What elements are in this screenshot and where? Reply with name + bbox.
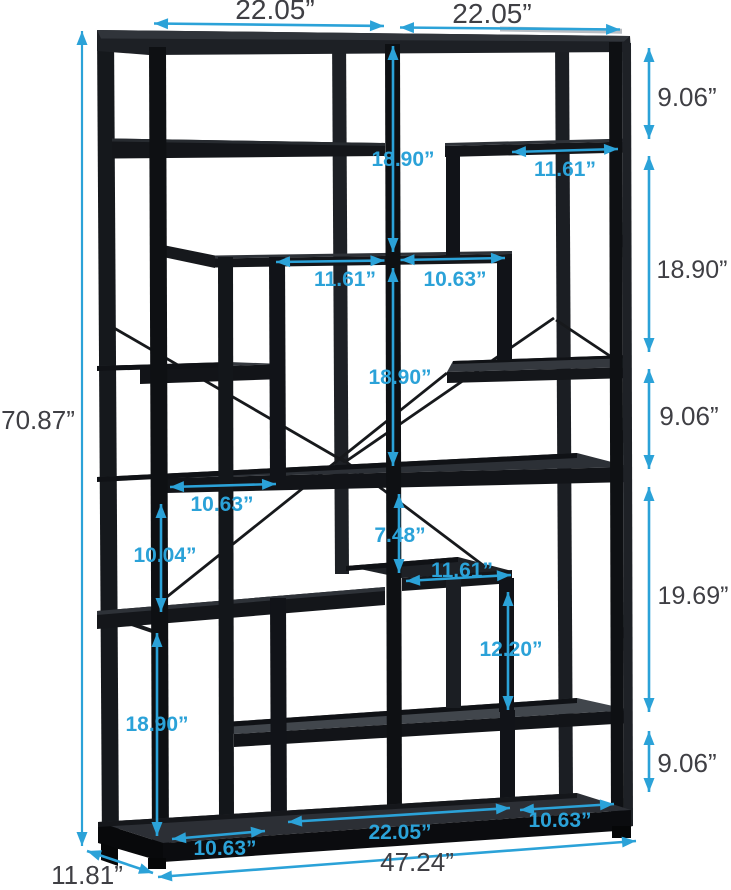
svg-text:70.87”: 70.87” bbox=[1, 405, 75, 435]
svg-text:9.06”: 9.06” bbox=[657, 82, 716, 112]
svg-text:11.81”: 11.81” bbox=[51, 860, 123, 890]
svg-text:11.61”: 11.61” bbox=[534, 158, 596, 181]
svg-text:10.63”: 10.63” bbox=[193, 837, 256, 860]
svg-text:22.05”: 22.05” bbox=[452, 0, 531, 29]
svg-text:10.63”: 10.63” bbox=[190, 493, 253, 516]
svg-text:12.20”: 12.20” bbox=[479, 638, 542, 661]
svg-text:47.24”: 47.24” bbox=[380, 847, 454, 877]
svg-text:9.06”: 9.06” bbox=[659, 401, 718, 431]
svg-text:7.48”: 7.48” bbox=[374, 524, 425, 547]
svg-text:18.90”: 18.90” bbox=[371, 148, 434, 171]
svg-text:19.69”: 19.69” bbox=[658, 582, 729, 610]
svg-text:22.05”: 22.05” bbox=[235, 0, 314, 25]
svg-text:18.90”: 18.90” bbox=[657, 256, 728, 284]
svg-text:10.04”: 10.04” bbox=[133, 544, 196, 567]
svg-text:9.06”: 9.06” bbox=[657, 748, 716, 778]
svg-text:18.90”: 18.90” bbox=[125, 713, 188, 736]
svg-text:22.05”: 22.05” bbox=[368, 821, 431, 844]
svg-text:18.90”: 18.90” bbox=[368, 366, 431, 389]
svg-text:10.63”: 10.63” bbox=[423, 268, 486, 291]
svg-text:10.63”: 10.63” bbox=[528, 809, 591, 832]
svg-text:11.61”: 11.61” bbox=[431, 559, 493, 582]
svg-text:11.61”: 11.61” bbox=[314, 268, 376, 291]
